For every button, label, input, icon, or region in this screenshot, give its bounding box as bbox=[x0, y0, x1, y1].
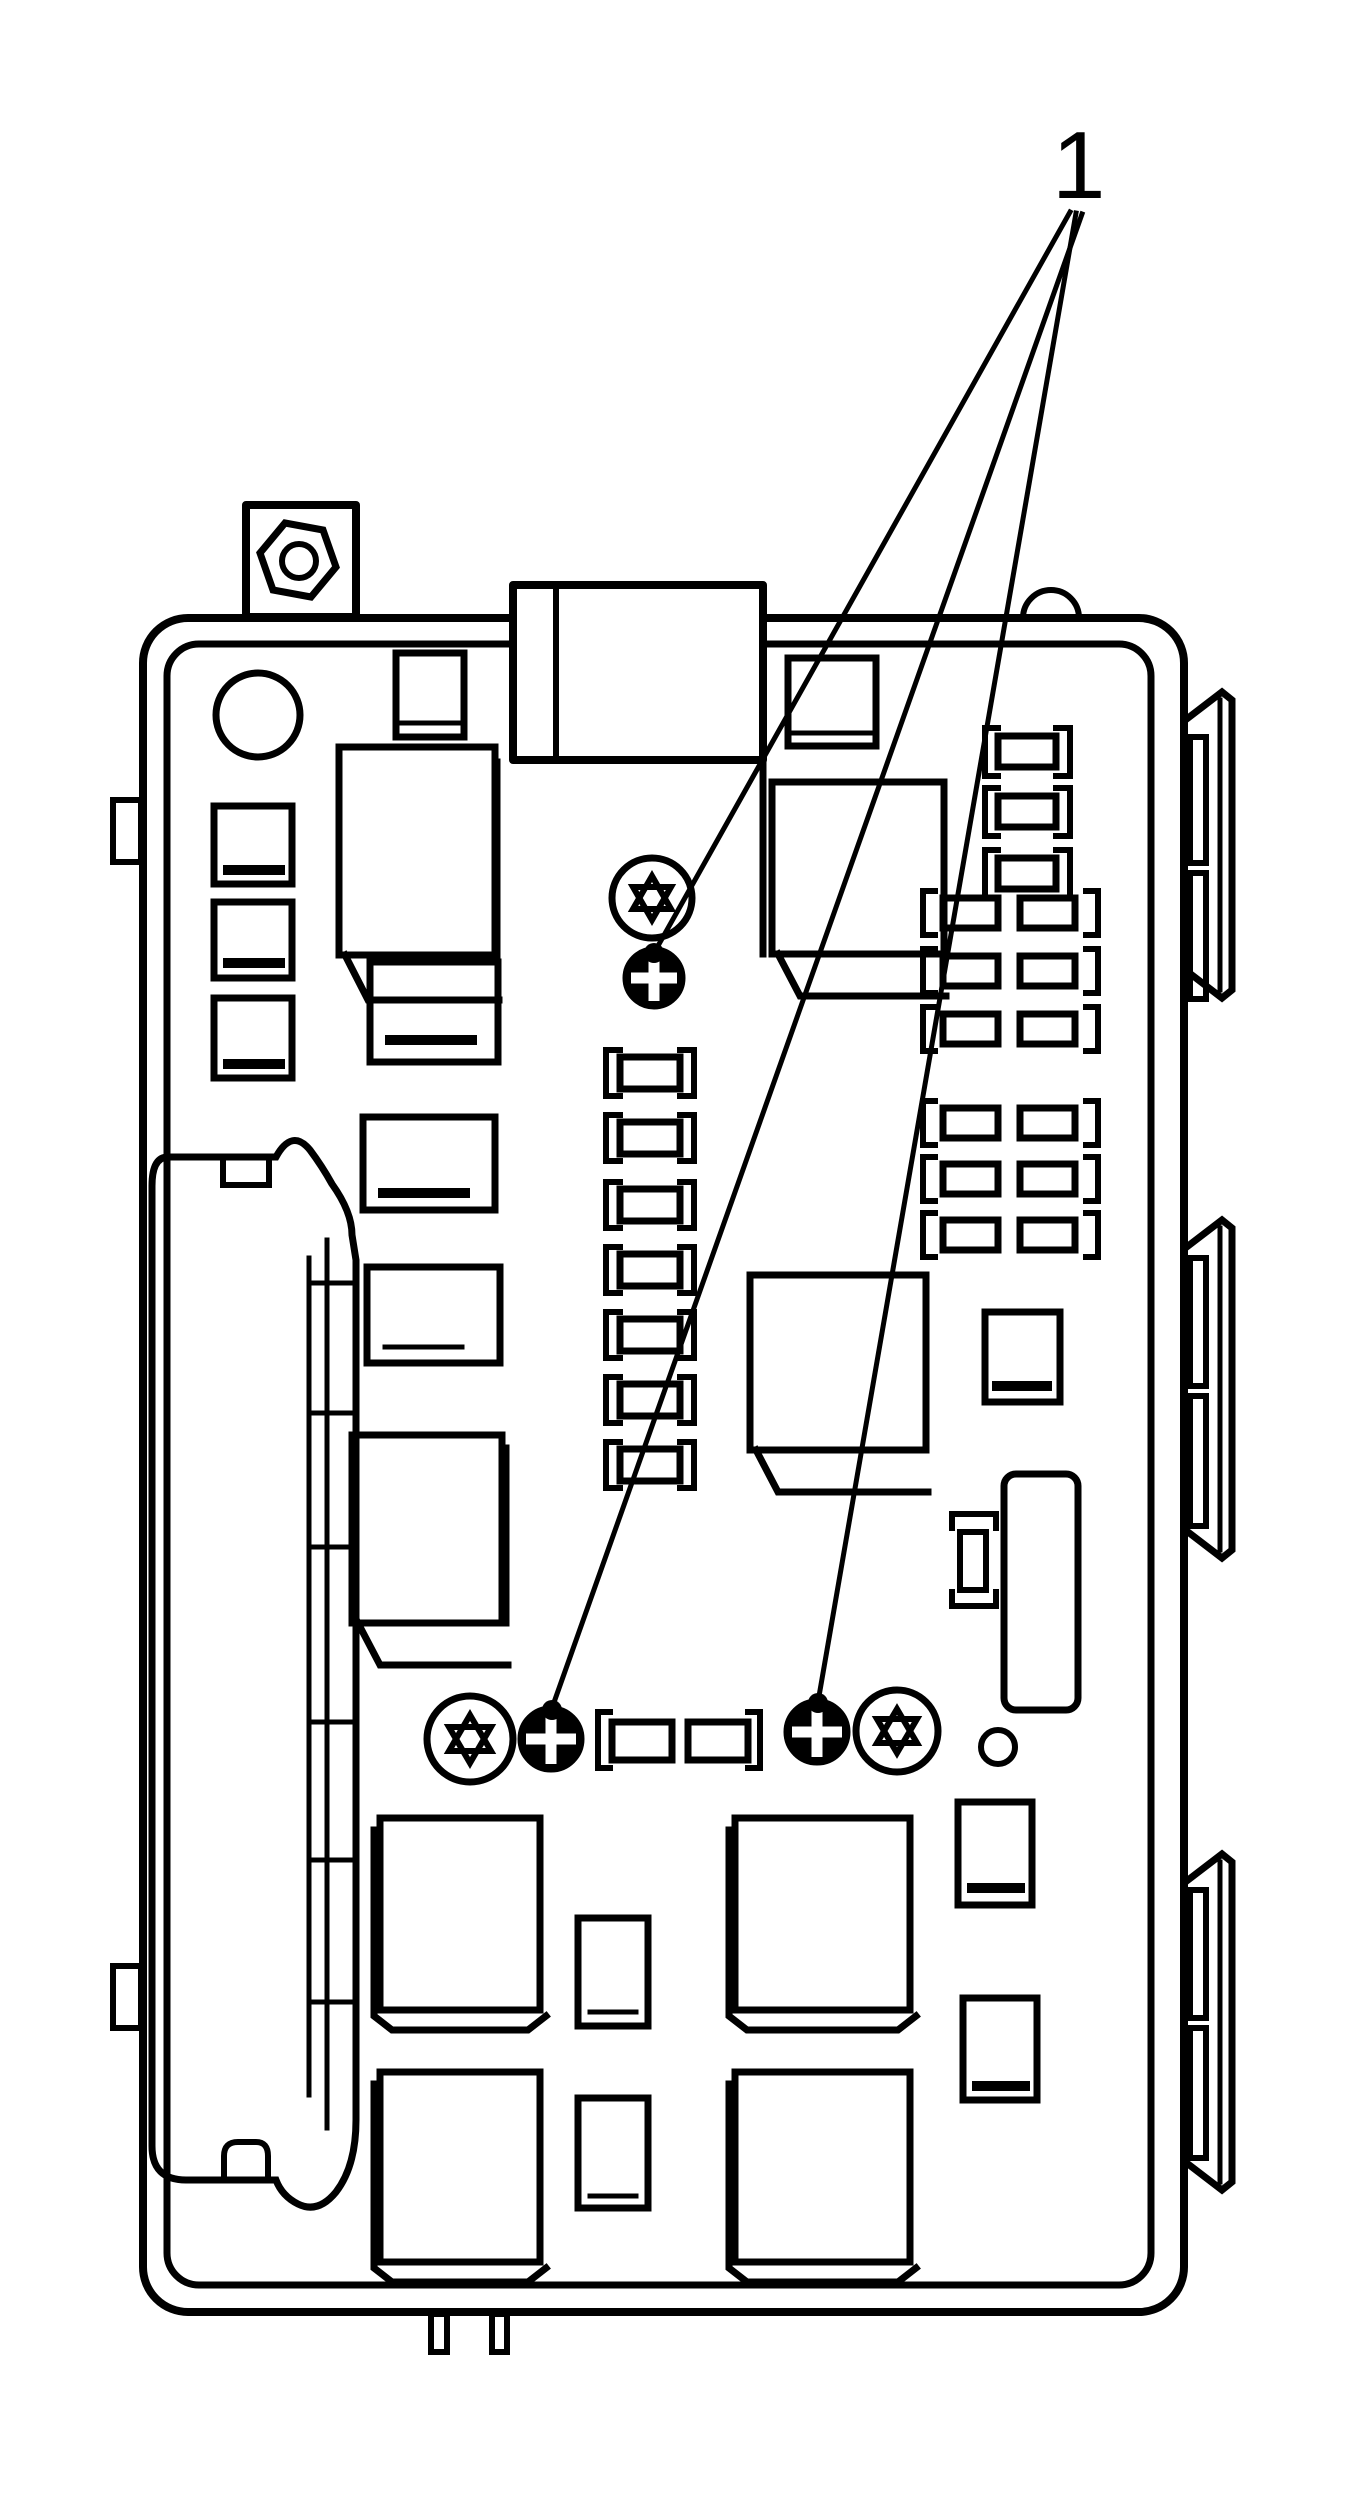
cover-bottom-tab bbox=[224, 2142, 268, 2180]
relay-bottom-4 bbox=[735, 2072, 910, 2262]
right-tab-top-slot-1 bbox=[1190, 737, 1206, 863]
relay-bottom-2-shadow bbox=[729, 1830, 916, 2030]
fuse bbox=[943, 1164, 998, 1194]
bottom-pins bbox=[431, 2314, 507, 2352]
relay-large-4-shadow bbox=[756, 1288, 928, 1492]
relay-large-2 bbox=[772, 782, 944, 954]
fuse-vertical bbox=[960, 1532, 986, 1590]
small-hole bbox=[981, 1730, 1015, 1764]
fuse bbox=[620, 1384, 680, 1416]
relay-bottom-2 bbox=[735, 1818, 910, 2010]
box-frame bbox=[143, 618, 1184, 2312]
fuse-pair-middle-row bbox=[598, 1712, 760, 1768]
leader-dot bbox=[644, 943, 664, 963]
torx-screw-icon bbox=[856, 1690, 938, 1772]
callout-label: 1 bbox=[1052, 112, 1105, 219]
round-well bbox=[216, 673, 300, 757]
right-tab-middle-slot-2 bbox=[1190, 1396, 1206, 1526]
fuse bbox=[612, 1722, 672, 1760]
fuse bbox=[1020, 956, 1075, 986]
relay-bottom-3 bbox=[380, 2072, 540, 2262]
fuse bbox=[998, 796, 1056, 827]
right-tab-bottom-slot-2 bbox=[1190, 2028, 1206, 2158]
relay-large-1 bbox=[339, 747, 495, 955]
fuse bbox=[943, 956, 998, 986]
cover-top-notch bbox=[223, 1157, 269, 1185]
fuse bbox=[620, 1057, 680, 1089]
relay-bottom-3-shadow bbox=[374, 2084, 546, 2282]
fuse bbox=[943, 1014, 998, 1044]
relay-large-4 bbox=[750, 1275, 926, 1450]
fuse bbox=[998, 736, 1056, 767]
fuse-slot-2 bbox=[578, 2098, 648, 2208]
relay-mid-1 bbox=[370, 962, 498, 1062]
torx-screw-icon bbox=[427, 1696, 513, 1782]
fuse bbox=[1020, 1220, 1075, 1250]
cover-panel bbox=[152, 1141, 356, 2208]
relay-bottom-4-shadow bbox=[729, 2084, 916, 2282]
right-tab-bottom-slot-1 bbox=[1190, 1890, 1206, 2018]
diagram-canvas: 1 bbox=[0, 0, 1354, 2496]
leader-dot bbox=[808, 1693, 828, 1713]
fuse bbox=[620, 1254, 680, 1286]
connector-tall-right bbox=[1004, 1474, 1078, 1710]
fuse bbox=[943, 1220, 998, 1250]
fuse bbox=[688, 1722, 748, 1760]
left-mount-tabs bbox=[113, 800, 141, 2028]
relay-large-3 bbox=[352, 1435, 502, 1623]
top-mount-bracket bbox=[246, 505, 356, 617]
fuse bbox=[1020, 898, 1075, 928]
top-edge-bump bbox=[1023, 590, 1079, 618]
fuse bbox=[620, 1449, 680, 1481]
cover-edge-rungs bbox=[309, 1283, 356, 2002]
right-tab-bottom bbox=[1188, 1854, 1232, 2190]
fuse bbox=[943, 1108, 998, 1138]
fuse-column-middle bbox=[606, 1050, 694, 1488]
relay-bottom-1 bbox=[380, 1818, 540, 2010]
leader-dot bbox=[542, 1700, 562, 1720]
relay-large-3-shadow bbox=[358, 1448, 508, 1665]
fuse bbox=[1020, 1164, 1075, 1194]
pin-2 bbox=[492, 2314, 507, 2352]
right-mount-tabs bbox=[1188, 692, 1232, 2190]
box-outer-wall bbox=[143, 618, 1184, 2312]
right-tab-middle-slot-1 bbox=[1190, 1258, 1206, 1386]
fuse bbox=[1020, 1014, 1075, 1044]
left-tab-lower bbox=[113, 1966, 141, 2028]
fuse bbox=[998, 858, 1056, 889]
relay-bottom-1-shadow bbox=[374, 1830, 546, 2030]
fuse-block-diagram: 1 bbox=[0, 0, 1354, 2496]
top-connector bbox=[513, 585, 763, 760]
fuse bbox=[620, 1189, 680, 1221]
fuse bbox=[1020, 1108, 1075, 1138]
fuse-column-topright bbox=[985, 728, 1070, 898]
fuse bbox=[620, 1319, 680, 1351]
pin-1 bbox=[431, 2314, 447, 2352]
fuse bbox=[620, 1122, 680, 1154]
left-tab-upper bbox=[113, 800, 141, 862]
